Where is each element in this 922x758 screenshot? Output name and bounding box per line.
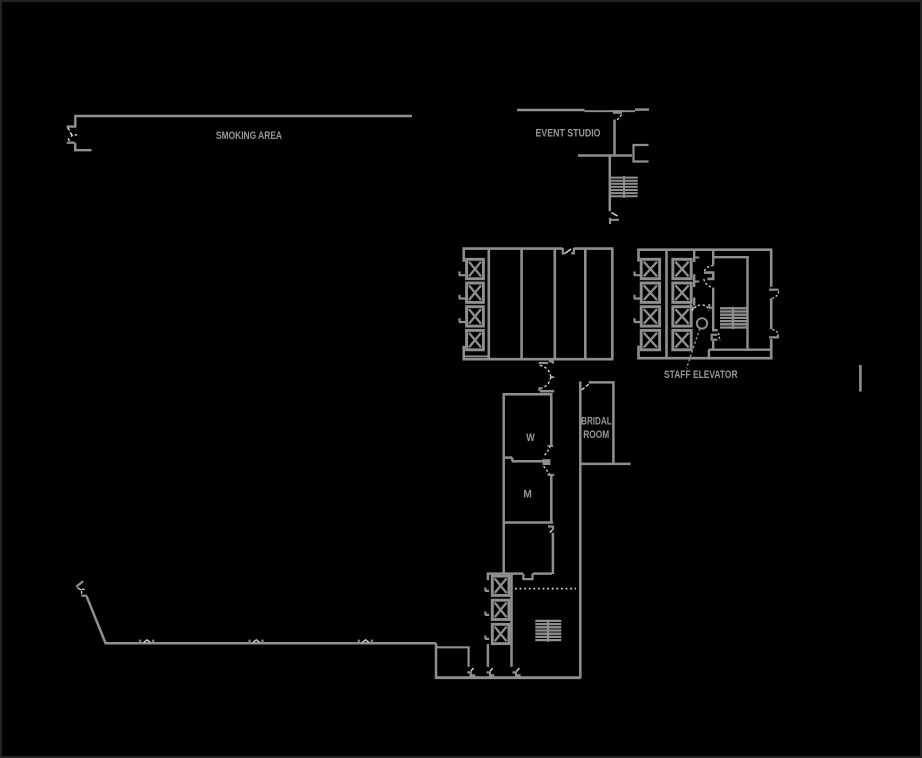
svg-text:BRIDAL: BRIDAL [581,416,612,428]
svg-text:M: M [523,489,532,501]
svg-text:W: W [526,432,535,444]
svg-text:STAFF ELEVATOR: STAFF ELEVATOR [664,369,738,381]
svg-text:ROOM: ROOM [583,429,609,441]
svg-text:EVENT STUDIO: EVENT STUDIO [536,128,601,140]
svg-text:SMOKING AREA: SMOKING AREA [216,130,282,142]
